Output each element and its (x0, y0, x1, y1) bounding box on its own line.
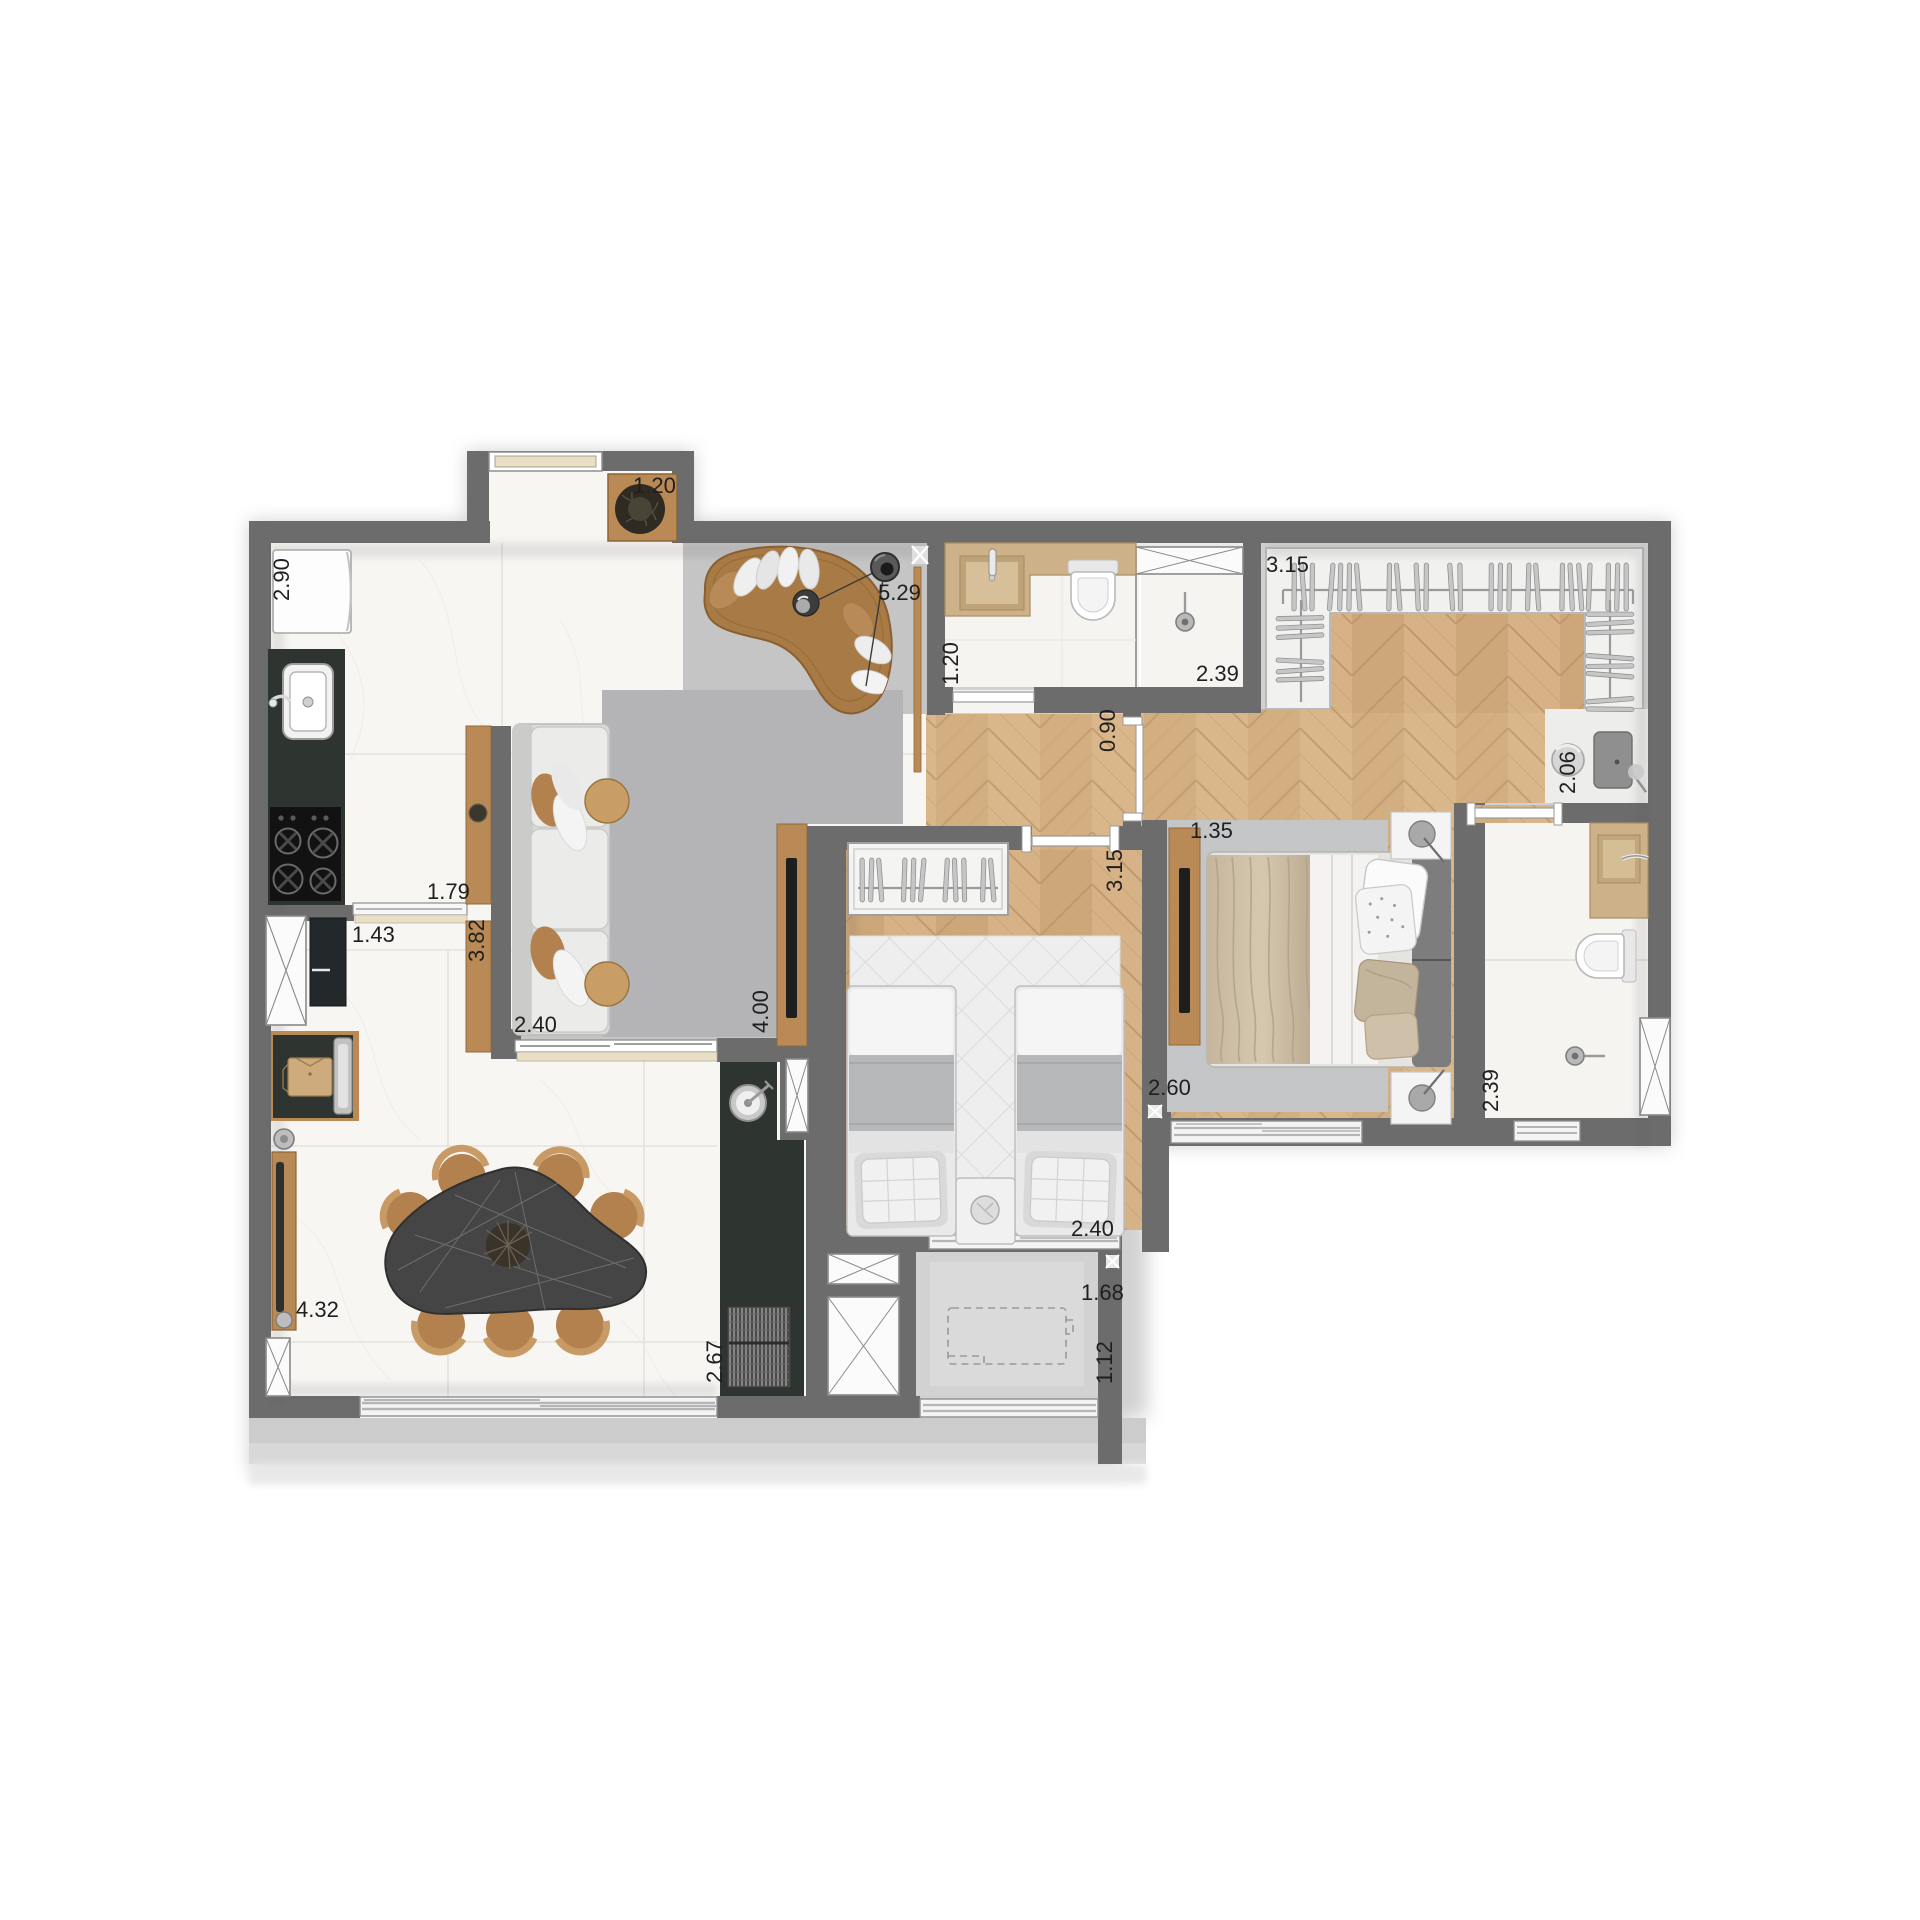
svg-text:1.12: 1.12 (1092, 1341, 1117, 1384)
svg-text:3.15: 3.15 (1266, 552, 1309, 577)
svg-text:2.67: 2.67 (702, 1340, 727, 1383)
svg-text:1.43: 1.43 (352, 922, 395, 947)
svg-text:2.40: 2.40 (514, 1012, 557, 1037)
svg-text:3.15: 3.15 (1102, 849, 1127, 892)
svg-text:1.79: 1.79 (427, 879, 470, 904)
svg-text:1.68: 1.68 (1081, 1280, 1124, 1305)
svg-text:1.20: 1.20 (633, 473, 676, 498)
svg-text:0.90: 0.90 (1095, 709, 1120, 752)
svg-text:1.35: 1.35 (1190, 818, 1233, 843)
svg-text:2.39: 2.39 (1478, 1069, 1503, 1112)
svg-text:2.06: 2.06 (1555, 751, 1580, 794)
svg-text:2.60: 2.60 (1148, 1075, 1191, 1100)
svg-text:4.32: 4.32 (296, 1297, 339, 1322)
svg-text:2.90: 2.90 (269, 558, 294, 601)
svg-text:4.00: 4.00 (748, 990, 773, 1033)
svg-text:5.29: 5.29 (878, 580, 921, 605)
svg-text:3.82: 3.82 (464, 919, 489, 962)
svg-text:2.40: 2.40 (1071, 1216, 1114, 1241)
svg-text:2.39: 2.39 (1196, 661, 1239, 686)
svg-text:1.20: 1.20 (938, 642, 963, 685)
